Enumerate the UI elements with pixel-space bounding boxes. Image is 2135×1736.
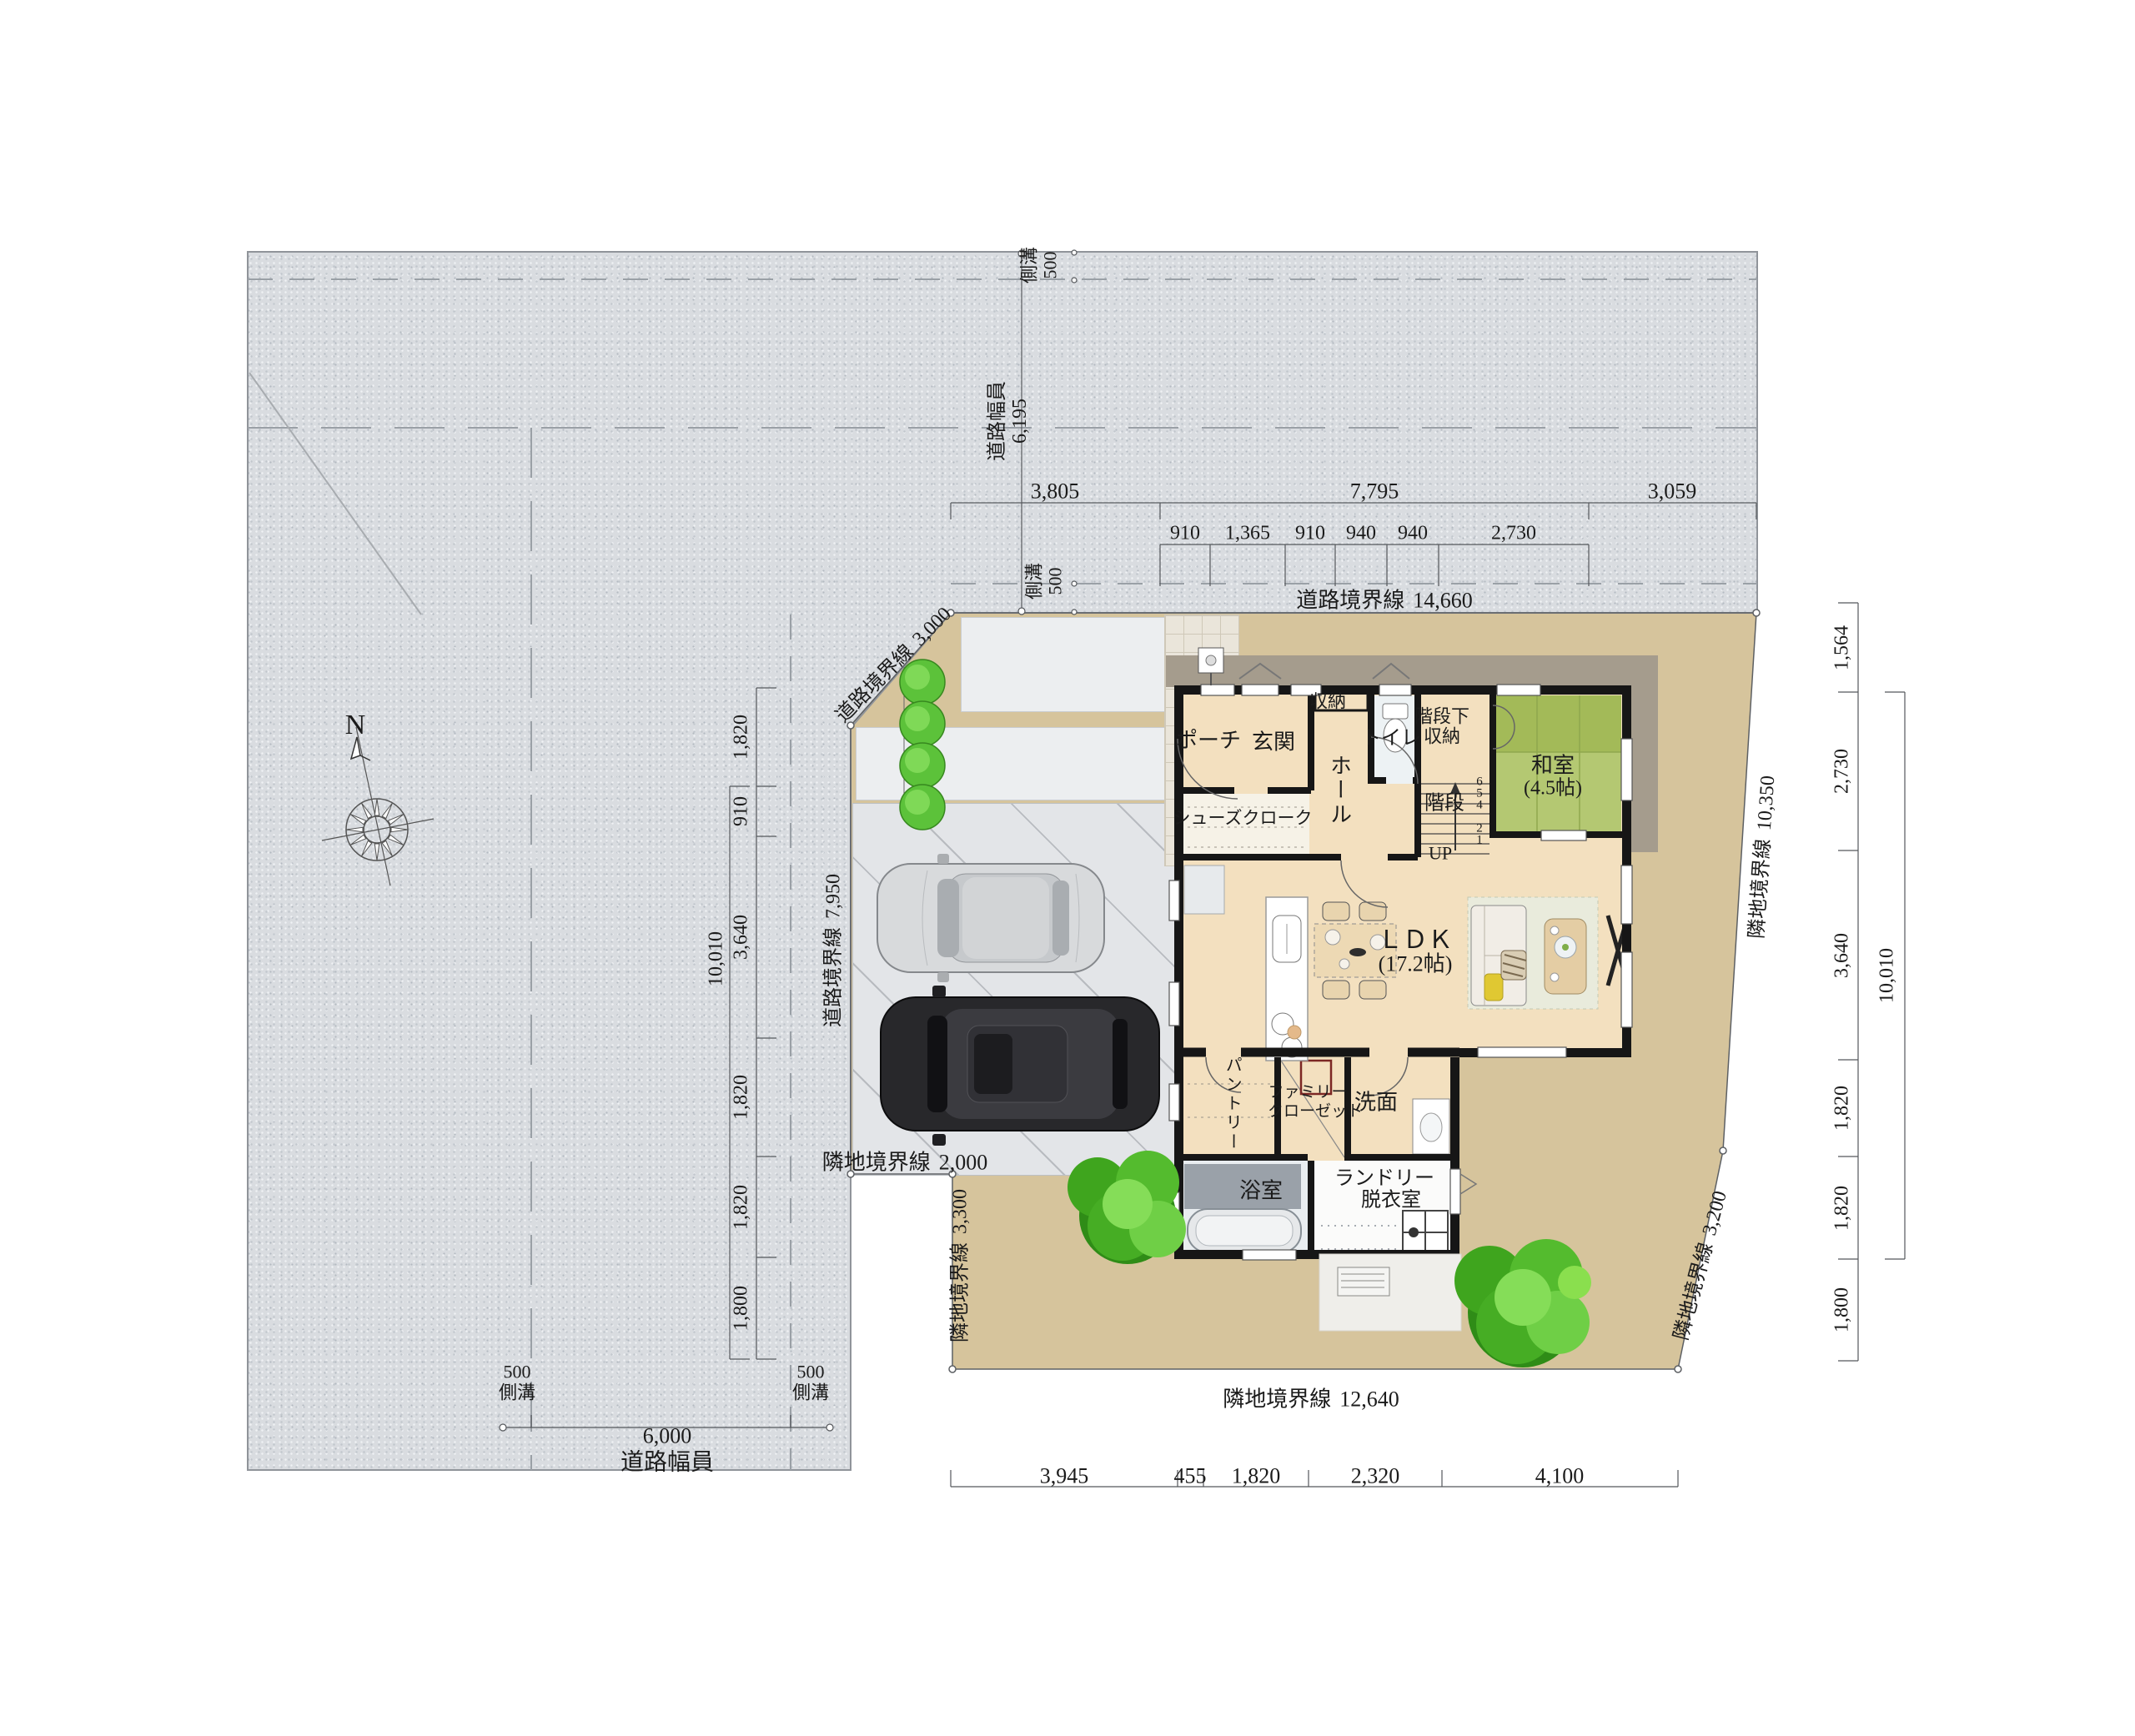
room-label-ldk-size: (17.2帖)	[1379, 951, 1453, 976]
dim-right-4: 1,820	[1831, 1186, 1854, 1231]
gutter-value: 500	[1045, 563, 1066, 600]
dim-top-grid-2: 910	[1295, 523, 1325, 545]
left-road-width-value: 6,000	[643, 1423, 692, 1448]
gutter-name: 側溝	[499, 1382, 535, 1403]
room-label-family-closet-2: クローゼット	[1268, 1102, 1363, 1120]
dim-right-total: 10,010	[1876, 948, 1899, 1003]
boundary-value: 2,000	[939, 1150, 988, 1174]
room-label-hall: ホール	[1327, 755, 1351, 827]
stair-step-4: 4	[1476, 799, 1483, 813]
hedge-bushes	[900, 660, 945, 830]
boundary-neighbor-west-lower: 隣地境界線3,300	[950, 1185, 972, 1347]
dim-right-5: 1,800	[1831, 1287, 1854, 1332]
dim-right-0: 1,564	[1831, 625, 1854, 670]
boundary-label: 隣地境界線	[822, 1150, 931, 1174]
dim-bottom-3: 2,320	[1351, 1463, 1400, 1488]
dim-right-1: 2,730	[1831, 749, 1854, 794]
dim-top-grid-3: 940	[1346, 523, 1376, 545]
boundary-neighbor-sw: 隣地境界線2,000	[818, 1150, 992, 1174]
room-label-entrance: 玄関	[1252, 730, 1295, 754]
boundary-value: 3,300	[950, 1189, 972, 1234]
road-width-name: 道路幅員	[987, 381, 1009, 461]
dim-left-1: 910	[731, 796, 753, 826]
room-label-washitsu: 和室	[1531, 753, 1575, 777]
top-road-width-label: 道路幅員 6,195	[987, 381, 1032, 461]
left-gutter-west-label: 500 側溝	[499, 1362, 535, 1402]
dim-left-4: 1,820	[731, 1185, 753, 1230]
dim-bottom-0: 3,945	[1040, 1463, 1089, 1488]
room-label-stairs: 階段	[1424, 793, 1464, 815]
site-plan-canvas: N 側溝 500 道路幅員 6,195 側溝 500 500 側溝 500 側溝…	[0, 0, 2135, 1736]
gutter-value: 500	[792, 1362, 829, 1382]
compass-north-label: N	[345, 710, 366, 741]
room-label-washroom: 洗面	[1354, 1090, 1398, 1114]
boundary-value: 14,660	[1413, 588, 1473, 612]
room-label-porch: ポーチ	[1176, 728, 1241, 752]
car-suv	[881, 986, 1159, 1146]
dim-top-overall-0: 3,805	[1031, 479, 1080, 503]
garden-tree-right	[1454, 1239, 1591, 1367]
garden-tree-left	[1067, 1151, 1186, 1264]
gutter-value: 500	[1040, 247, 1061, 283]
dim-left-total: 10,010	[706, 931, 728, 986]
dim-bottom-1: 455	[1174, 1463, 1207, 1488]
room-label-toilet: トイレ	[1361, 728, 1421, 750]
boundary-value: 7,950	[823, 874, 845, 919]
boundary-value: 12,640	[1339, 1387, 1399, 1411]
room-label-under-stair-2: 収納	[1424, 727, 1460, 748]
room-label-pantry: パントリー	[1223, 1056, 1241, 1152]
dim-top-grid-1: 1,365	[1225, 523, 1270, 545]
room-label-storage: 収納	[1309, 692, 1346, 713]
boundary-label: 隣地境界線	[950, 1242, 972, 1342]
boundary-label: 道路境界線	[823, 927, 845, 1027]
stair-step-1: 1	[1476, 834, 1483, 848]
boundary-label: 隣地境界線	[1223, 1387, 1331, 1411]
dim-left-2: 3,640	[731, 915, 753, 960]
top-gutter-lower-label: 側溝 500	[1024, 563, 1065, 600]
dim-left-0: 1,820	[731, 715, 753, 760]
boundary-label: 道路境界線	[1296, 588, 1404, 612]
room-label-ldk: ＬＤＫ	[1378, 926, 1453, 955]
room-label-under-stair-1: 階段下	[1414, 707, 1469, 728]
room-label-bathroom: 浴室	[1239, 1178, 1283, 1202]
dim-right-2: 3,640	[1831, 933, 1854, 978]
dim-left-5: 1,800	[731, 1286, 753, 1331]
room-label-up: UP	[1429, 844, 1452, 865]
car-sedan	[877, 854, 1104, 982]
gutter-value: 500	[499, 1362, 535, 1382]
boundary-value: 10,350	[1754, 775, 1780, 831]
dim-left-3: 1,820	[731, 1075, 753, 1120]
left-gutter-east-label: 500 側溝	[792, 1362, 829, 1402]
dim-top-overall-2: 3,059	[1648, 479, 1697, 503]
gutter-name: 側溝	[792, 1382, 829, 1403]
dim-top-grid-5: 2,730	[1491, 523, 1536, 545]
room-label-laundry-1: ランドリー	[1334, 1168, 1434, 1191]
dim-right-3: 1,820	[1831, 1086, 1854, 1131]
dim-top-grid-4: 940	[1398, 523, 1428, 545]
road-width-value: 6,195	[1009, 381, 1032, 461]
boundary-neighbor-south: 隣地境界線12,640	[1218, 1387, 1404, 1411]
dim-top-overall-1: 7,795	[1350, 479, 1399, 503]
top-gutter-upper-label: 側溝 500	[1019, 247, 1060, 283]
compass-rose	[322, 727, 434, 886]
boundary-road-north: 道路境界線14,660	[1292, 588, 1477, 612]
left-road-width-name: 道路幅員	[620, 1449, 714, 1475]
room-label-family-closet-1: ファミリー	[1268, 1083, 1347, 1101]
dim-bottom-2: 1,820	[1232, 1463, 1281, 1488]
dim-top-grid-0: 910	[1170, 523, 1200, 545]
room-label-shoe-closet: シューズクローク	[1173, 809, 1313, 829]
gutter-name: 側溝	[1019, 247, 1040, 283]
boundary-road-west: 道路境界線7,950	[823, 870, 846, 1031]
room-label-laundry-2: 脱衣室	[1361, 1190, 1421, 1212]
room-label-washitsu-size: (4.5帖)	[1524, 778, 1582, 800]
gutter-name: 側溝	[1024, 563, 1045, 600]
dim-bottom-4: 4,100	[1535, 1463, 1585, 1488]
